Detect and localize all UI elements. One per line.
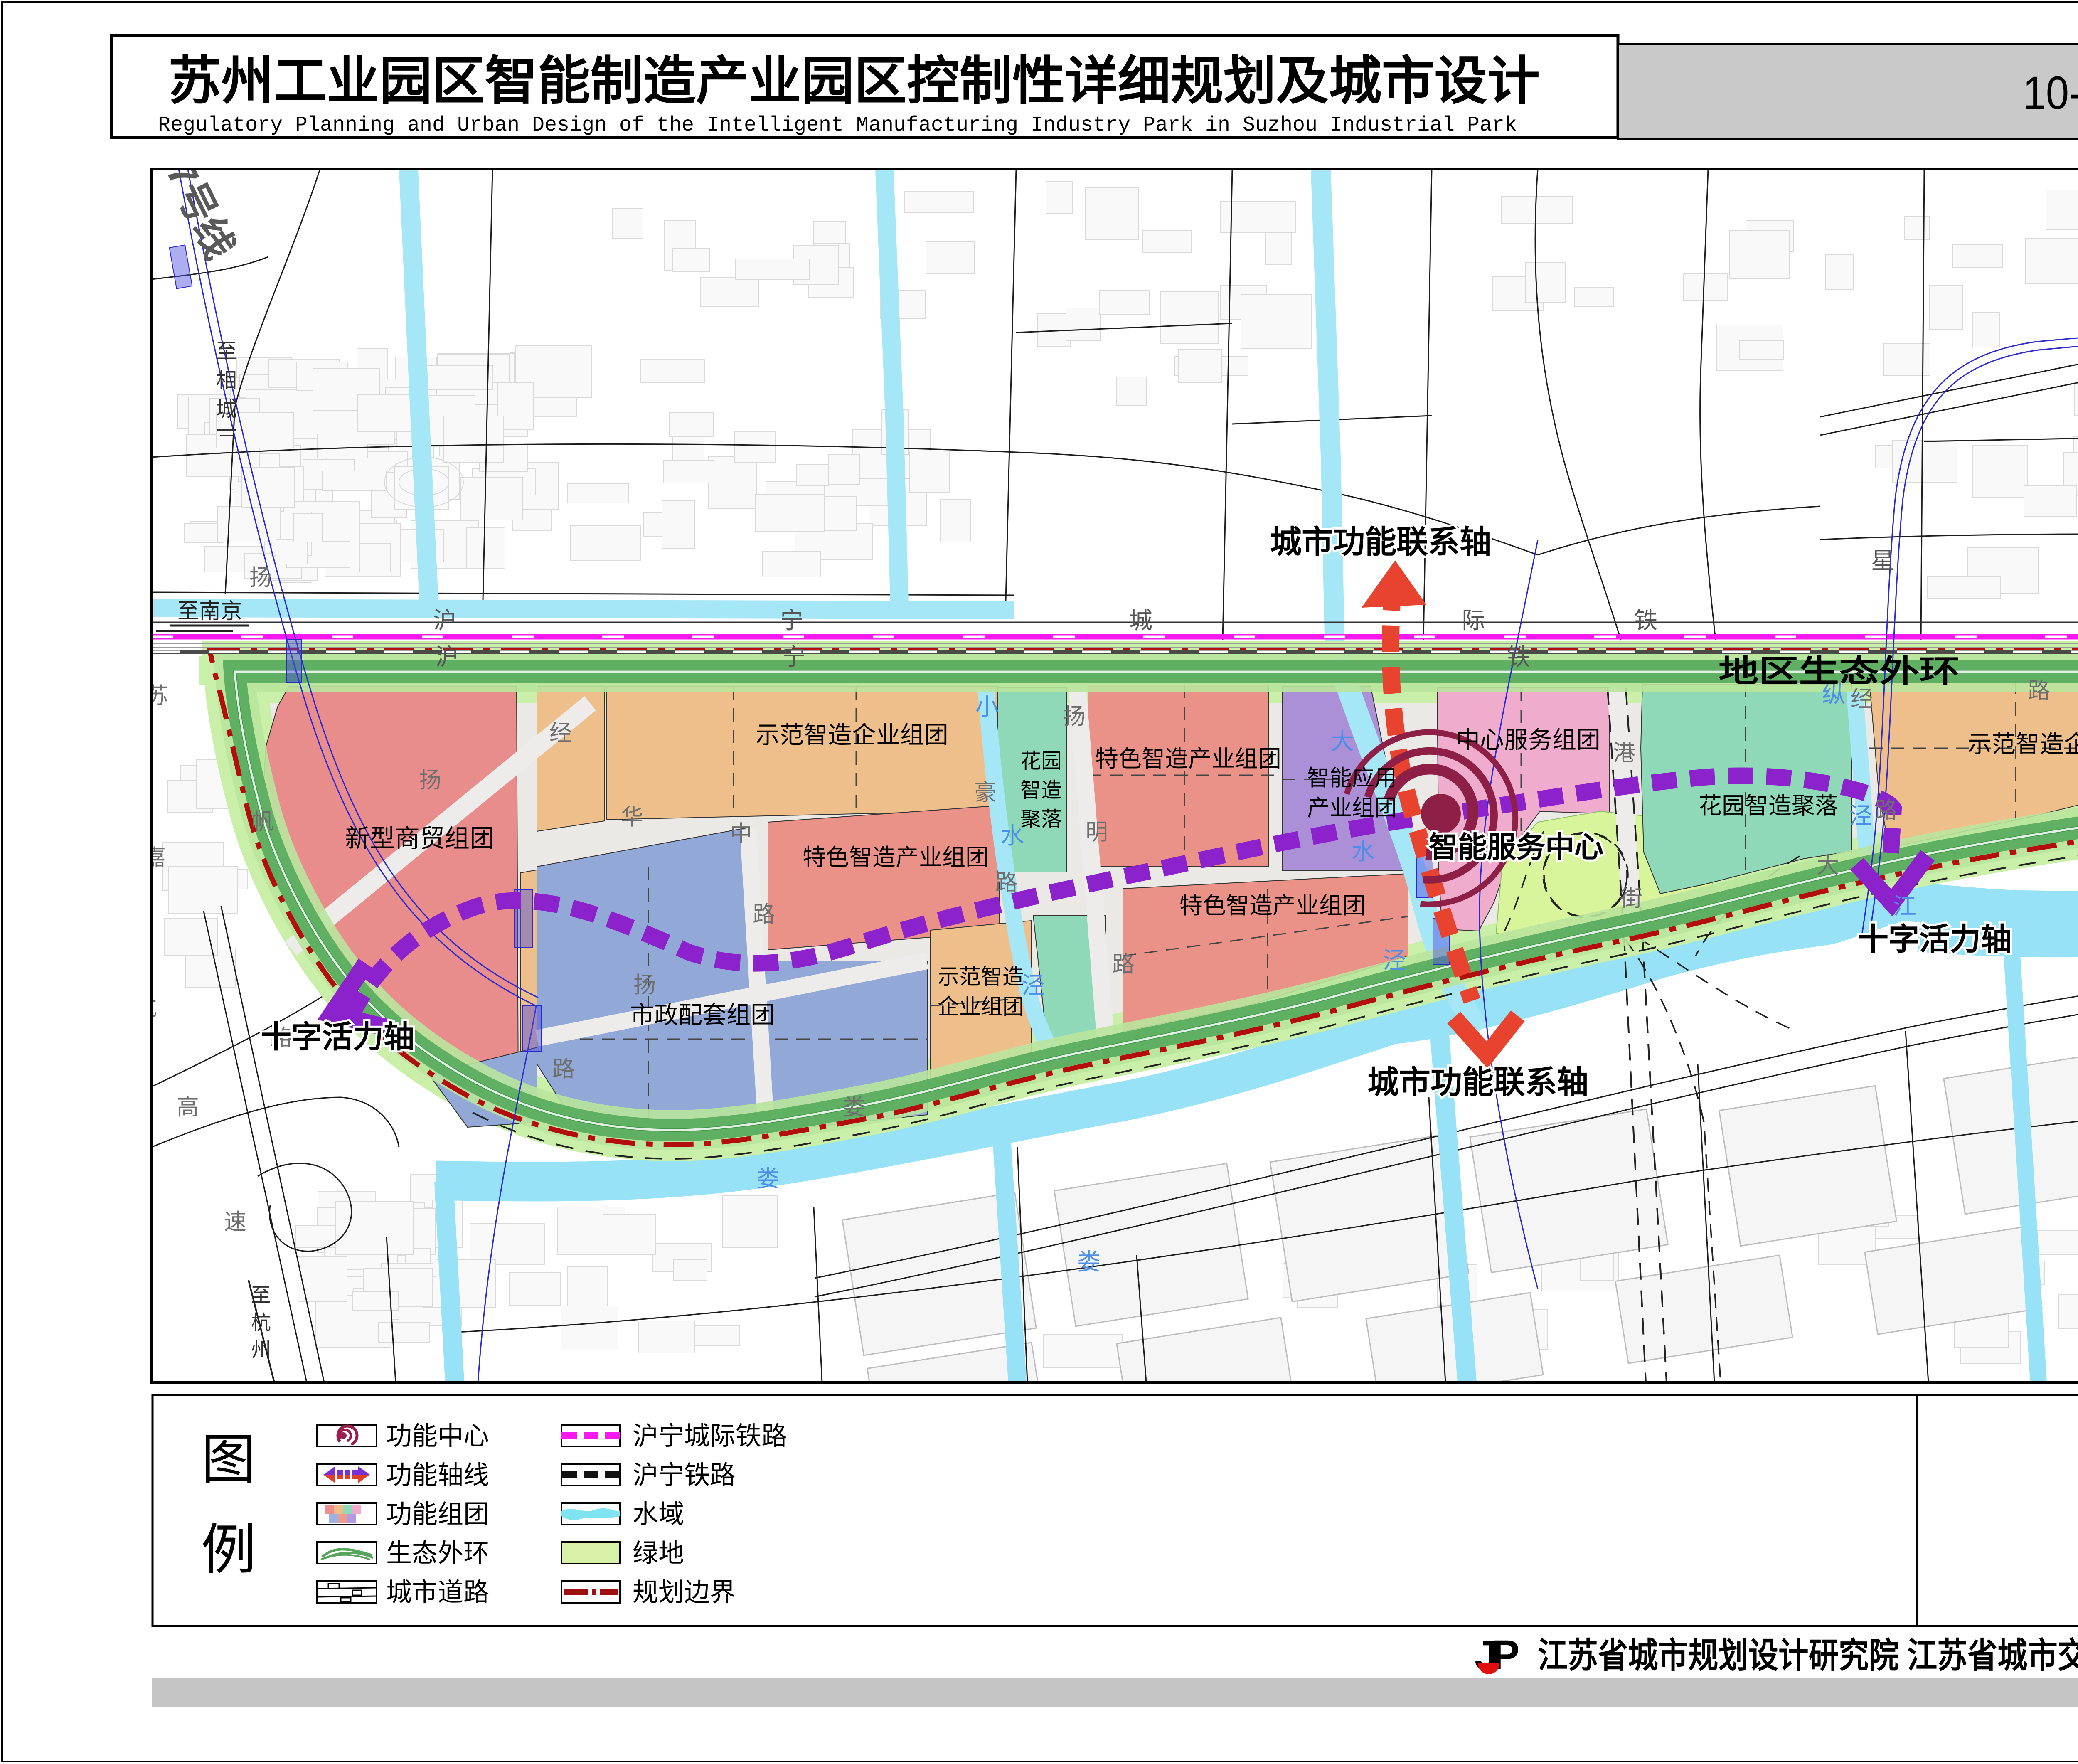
svg-text:城市功能联系轴: 城市功能联系轴: [1270, 525, 1491, 560]
svg-text:智能服务中心: 智能服务中心: [1429, 831, 1603, 863]
svg-text:路: 路: [995, 870, 1018, 895]
svg-text:际: 际: [1462, 607, 1485, 633]
svg-text:水域: 水域: [633, 1500, 684, 1529]
svg-text:花园智造聚落: 花园智造聚落: [1699, 793, 1838, 819]
svg-text:娄: 娄: [756, 1165, 780, 1192]
svg-text:功能中心: 功能中心: [386, 1422, 489, 1451]
svg-text:功能轴线: 功能轴线: [386, 1461, 489, 1490]
svg-text:宁: 宁: [782, 644, 805, 670]
svg-text:Regulatory Planning and Urban: Regulatory Planning and Urban Design of …: [158, 113, 1517, 137]
svg-text:星: 星: [1871, 547, 1894, 574]
svg-text:港: 港: [1613, 741, 1635, 766]
svg-text:特色智造产业组团: 特色智造产业组团: [803, 844, 989, 870]
svg-text:沪宁铁路: 沪宁铁路: [633, 1461, 736, 1490]
svg-text:泾: 泾: [1383, 947, 1406, 973]
svg-text:江苏省城市规划设计研究院 江苏省城市交通规划研究中心: 江苏省城市规划设计研究院 江苏省城市交通规划研究中心: [1538, 1636, 2078, 1675]
svg-text:路: 路: [552, 1057, 575, 1082]
svg-text:娄: 娄: [1077, 1249, 1101, 1275]
svg-text:扬: 扬: [1063, 704, 1086, 729]
svg-text:豪: 豪: [974, 780, 997, 805]
svg-text:高: 高: [177, 1095, 199, 1120]
svg-text:产业组团: 产业组团: [1307, 796, 1397, 820]
svg-text:街: 街: [1620, 886, 1642, 911]
svg-text:扬: 扬: [419, 768, 441, 793]
svg-text:示范智造: 示范智造: [938, 965, 1024, 989]
svg-text:绿地: 绿地: [633, 1539, 684, 1568]
svg-text:经: 经: [1851, 687, 1873, 712]
svg-text:JP: JP: [1475, 1632, 1519, 1678]
svg-text:明: 明: [1086, 820, 1108, 845]
svg-text:路: 路: [2028, 678, 2050, 703]
svg-text:泾: 泾: [1849, 803, 1872, 829]
svg-text:聚落: 聚落: [1020, 808, 1062, 831]
svg-text:沪: 沪: [433, 607, 456, 633]
svg-text:铁: 铁: [1634, 607, 1657, 633]
svg-text:经: 经: [549, 721, 572, 746]
svg-text:十字活力轴: 十字活力轴: [261, 1020, 414, 1054]
svg-text:功能组团: 功能组团: [386, 1500, 489, 1529]
svg-text:城市功能联系轴: 城市功能联系轴: [1367, 1065, 1588, 1100]
svg-text:路: 路: [1112, 952, 1135, 977]
svg-text:宁: 宁: [780, 607, 803, 633]
svg-text:图: 图: [201, 1429, 256, 1490]
svg-text:帆: 帆: [251, 809, 274, 834]
svg-text:铁: 铁: [1507, 644, 1530, 670]
svg-text:特色智造产业组团: 特色智造产业组团: [1179, 892, 1366, 919]
svg-text:沪宁城际铁路: 沪宁城际铁路: [633, 1422, 787, 1451]
svg-text:水: 水: [1352, 838, 1375, 865]
svg-text:示范智造企业组团: 示范智造企业组团: [1967, 731, 2078, 758]
svg-text:城: 城: [1129, 607, 1152, 633]
svg-text:江: 江: [1893, 893, 1916, 919]
svg-text:路: 路: [1875, 798, 1897, 823]
svg-text:新型商贸组团: 新型商贸组团: [345, 825, 495, 852]
svg-text:市政配套组团: 市政配套组团: [630, 1002, 775, 1029]
svg-text:例: 例: [201, 1519, 256, 1580]
svg-text:企业组团: 企业组团: [938, 995, 1024, 1019]
svg-text:花园: 花园: [1020, 749, 1062, 773]
svg-text:示范智造企业组团: 示范智造企业组团: [756, 722, 948, 749]
svg-text:智造: 智造: [1020, 779, 1062, 802]
svg-text:华: 华: [621, 805, 643, 830]
svg-text:扬: 扬: [633, 973, 656, 998]
svg-text:速: 速: [224, 1210, 246, 1234]
svg-text:城市道路: 城市道路: [386, 1578, 489, 1607]
svg-text:中: 中: [730, 821, 752, 846]
svg-text:智能应用: 智能应用: [1307, 766, 1397, 791]
svg-text:至南京: 至南京: [177, 599, 242, 623]
svg-text:娄: 娄: [843, 1095, 865, 1120]
svg-text:规划边界: 规划边界: [633, 1578, 736, 1607]
svg-text:至: 至: [216, 340, 237, 363]
svg-text:路: 路: [753, 902, 775, 927]
svg-text:大: 大: [1331, 728, 1354, 754]
svg-text:十字活力轴: 十字活力轴: [1858, 922, 2012, 956]
svg-text:生态外环: 生态外环: [386, 1539, 489, 1568]
svg-text:大: 大: [1817, 853, 1839, 878]
svg-text:扬: 扬: [249, 565, 272, 590]
svg-text:沪: 沪: [435, 644, 458, 670]
svg-text:10-功能结构规划图: 10-功能结构规划图: [2023, 67, 2078, 119]
svg-text:小: 小: [975, 694, 999, 720]
svg-text:泾: 泾: [1022, 972, 1045, 998]
svg-text:苏州工业园区智能制造产业园区控制性详细规划及城市设计: 苏州工业园区智能制造产业园区控制性详细规划及城市设计: [168, 52, 1540, 110]
svg-text:中心服务组团: 中心服务组团: [1456, 727, 1600, 754]
svg-text:地区生态外环: 地区生态外环: [1719, 654, 1960, 688]
svg-text:特色智造产业组团: 特色智造产业组团: [1095, 746, 1281, 772]
svg-text:城: 城: [216, 398, 237, 421]
svg-text:相: 相: [216, 369, 237, 392]
